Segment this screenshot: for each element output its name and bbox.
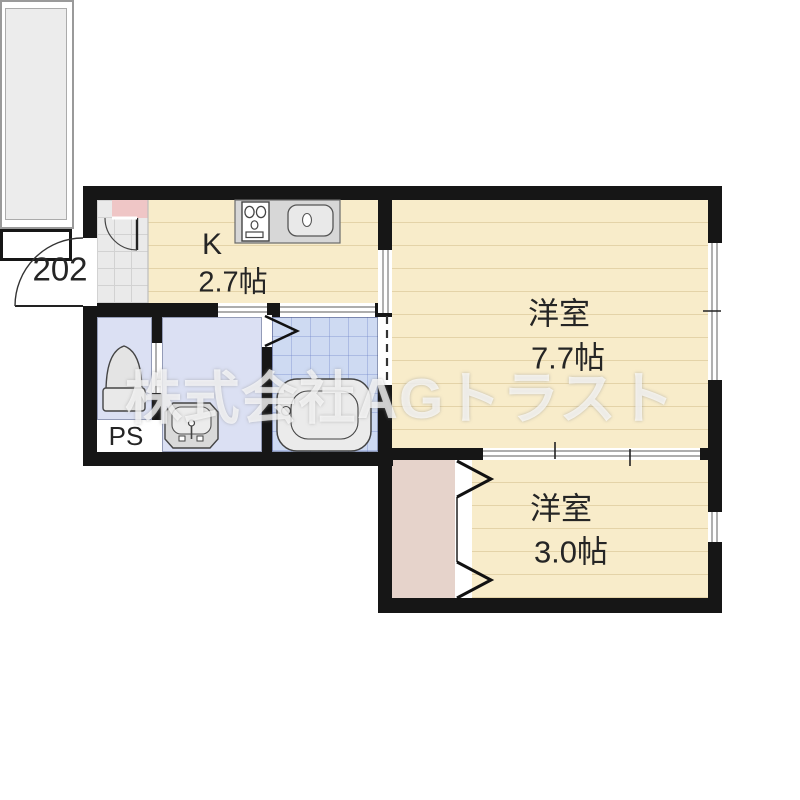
western-room-1-size-label: 7.7帖 <box>531 343 605 374</box>
western-room-1-name-label: 洋室 <box>528 299 590 330</box>
western-room-2-name-label: 洋室 <box>530 494 592 525</box>
interior-door-icon <box>105 218 137 250</box>
bathtub-icon <box>277 379 371 451</box>
unit-number-label: 202 <box>32 253 87 286</box>
washbasin-icon <box>165 403 218 448</box>
stove-icon <box>242 202 269 241</box>
kitchen-size-label: 2.7帖 <box>198 269 267 298</box>
pipe-space-label: PS <box>109 423 144 449</box>
closet-folding-door-icon <box>457 461 491 598</box>
sink-icon <box>288 205 333 236</box>
floorplan-canvas: 202 K 2.7帖 洋室 7.7帖 洋室 3.0帖 PS 株式会社AGトラスト <box>0 0 800 800</box>
fixtures-layer <box>0 0 800 800</box>
sliding-panel-ticks <box>555 311 721 466</box>
western-room-2-size-label: 3.0帖 <box>534 537 608 568</box>
toilet-icon <box>103 346 145 411</box>
kitchen-name-label: K <box>202 230 222 260</box>
bathroom-folding-door-icon <box>265 316 297 346</box>
